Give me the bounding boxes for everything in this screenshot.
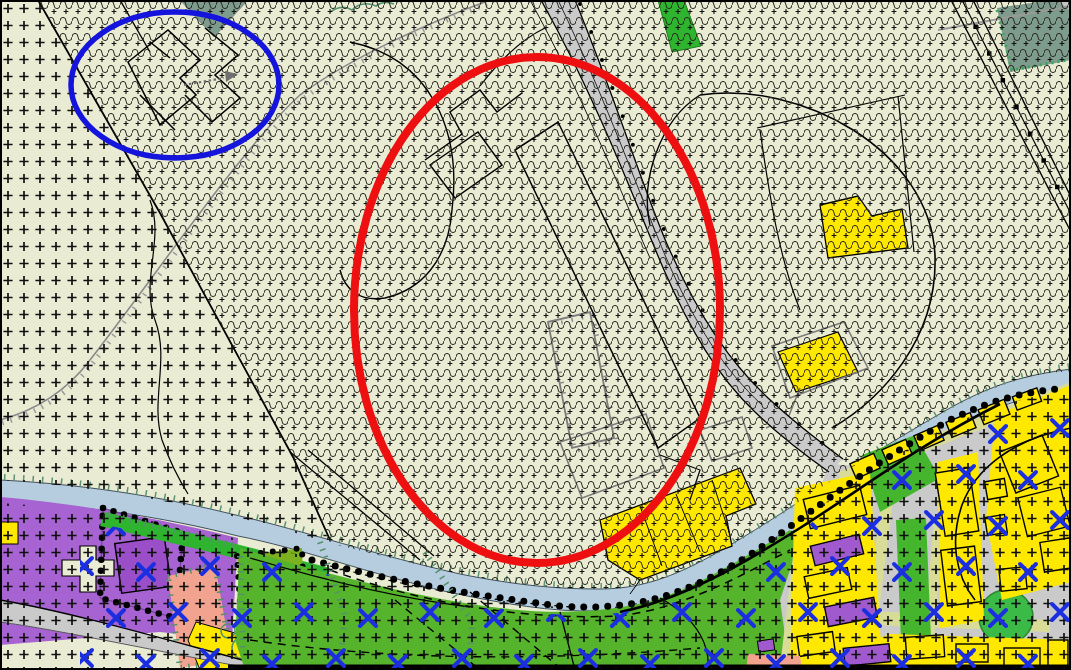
pattern-overlays xyxy=(0,0,1071,670)
zoning-map-canvas xyxy=(0,0,1071,670)
map-viewport xyxy=(0,0,1071,670)
